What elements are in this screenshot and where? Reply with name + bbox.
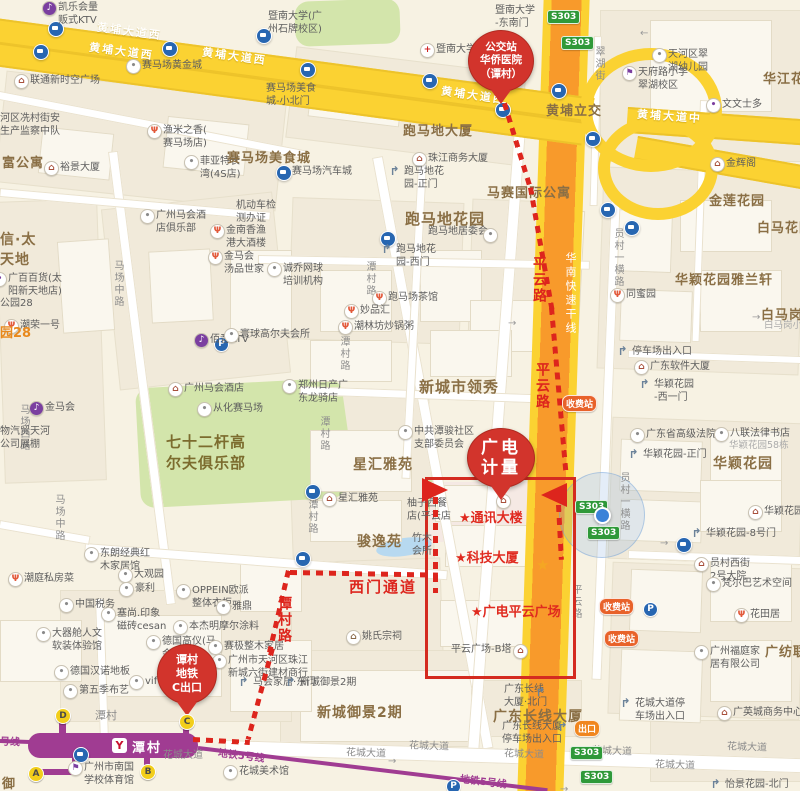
ktv-icon: ♪ — [194, 333, 209, 348]
poi-label: vif — [145, 676, 157, 689]
interchange-ramp — [598, 116, 718, 220]
badge-s303: S303 — [561, 36, 594, 50]
area-label: 黄埔立交 — [546, 100, 602, 119]
poi-label: 跑马地花 园-正门 — [404, 166, 444, 191]
road-label: 马场中路 — [51, 494, 66, 542]
direction-arrow-icon: → — [752, 312, 760, 323]
metro-exit-marker-line: 地铁 — [176, 667, 198, 681]
poi-label: 雅鼎 — [232, 601, 252, 614]
restaurant-icon: Ψ — [210, 224, 225, 239]
metro-station-name: 潭村 — [132, 737, 162, 756]
building-icon: ⌂ — [322, 492, 337, 507]
poi-label: 郑州日产广 东龙骑店 — [298, 380, 348, 405]
shop-icon: • — [706, 98, 721, 113]
restaurant-icon: Ψ — [208, 250, 223, 265]
destination-marker-line: 计量 — [481, 458, 521, 478]
generic-icon: • — [197, 402, 212, 417]
parking-icon: P — [643, 602, 658, 617]
area-label: 华江花园 — [763, 68, 800, 87]
poi-label: 广英城商务中心 — [733, 707, 800, 720]
generic-icon: • — [223, 765, 238, 780]
school-icon: ⚑ — [622, 66, 637, 81]
poi-label: 寰球高尔夫会所 — [240, 329, 310, 342]
gate-icon: ↱ — [709, 778, 722, 791]
current-location-dot[interactable] — [594, 507, 611, 524]
badge-toll-station: 收费站 — [604, 630, 639, 647]
poi-label: 华颖花园 — [764, 506, 800, 519]
area-label: 新城御景2期 — [317, 702, 403, 722]
building-icon: ⌂ — [14, 74, 29, 89]
generic-icon: • — [652, 48, 667, 63]
poi-label: 金马会 — [45, 402, 75, 415]
poi-label: 八联法律书店 — [730, 428, 790, 441]
restaurant-icon: Ψ — [610, 288, 625, 303]
building-icon: ⌂ — [694, 557, 709, 572]
building — [310, 340, 392, 382]
road-label: 花城大道 — [346, 743, 386, 759]
area-label: 跑马地大厦 — [403, 120, 473, 139]
generic-icon: • — [146, 635, 161, 650]
poi-label: 妙品汇 — [360, 305, 390, 318]
metro-exit-C[interactable]: C — [179, 714, 195, 730]
bus-stop-icon — [300, 62, 316, 78]
generic-icon: • — [714, 427, 729, 442]
area-label: 广东长线大厦 — [493, 706, 583, 726]
destination-marker-line: 广电 — [481, 438, 521, 458]
ktv-icon: ♪ — [29, 401, 44, 416]
bus-stop-marker-line: 华侨医院 — [480, 54, 522, 68]
poi-label: 花城美术馆 — [239, 766, 289, 779]
gate-icon: ↱ — [534, 686, 547, 699]
building-icon: ⌂ — [44, 161, 59, 176]
poi-label: 广州福庭家 居有限公司 — [710, 646, 760, 671]
destination-poi-label: ★通讯大楼 — [459, 507, 523, 526]
route-dotted-line — [433, 497, 438, 593]
metro-line-label: 号线 — [0, 733, 20, 749]
poi-label: 德国汉诺地板 — [70, 666, 130, 679]
destination-marker[interactable]: 广电 计量 — [467, 428, 535, 488]
map-label: 公园28 — [0, 298, 33, 311]
poi-label: 金南香渔 港大酒楼 — [226, 225, 266, 250]
road-label: 员村一横路 — [610, 228, 625, 288]
area-label-faint: 白马岗小区 — [764, 320, 800, 332]
building — [148, 248, 214, 323]
gate-icon: ↱ — [616, 345, 629, 358]
area-label-faint: 华颖花园58栋 — [729, 440, 789, 452]
parking-icon: P — [446, 779, 461, 791]
poi-label: 华颖花园-8号门 — [706, 528, 776, 541]
poi-label: 广州马会酒 店俱乐部 — [156, 210, 206, 235]
road-label: 潭村路 — [316, 416, 331, 452]
generic-icon: • — [267, 262, 282, 277]
road-label: 潭村路 — [336, 336, 351, 372]
metro-line-label: 地铁5号线 — [459, 770, 507, 791]
generic-icon: • — [118, 568, 133, 583]
poi-label: 华颖花园 -西一门 — [654, 379, 694, 404]
road-label: 翠湖街 — [591, 46, 606, 82]
bus-stop-icon — [162, 41, 178, 57]
road-label: 花城大道 — [727, 737, 767, 753]
area-label-highlight: 园28 — [0, 322, 31, 341]
map-label: 竹木 会所 — [412, 533, 432, 558]
badge-s303: S303 — [547, 10, 580, 24]
ktv-icon: ♪ — [42, 1, 57, 16]
area-label: 赛马场美食城 — [227, 147, 311, 166]
generic-icon: • — [282, 379, 297, 394]
bus-stop-marker-line: （谭村） — [480, 68, 522, 82]
bus-stop-icon — [600, 202, 616, 218]
generic-icon: • — [119, 582, 134, 597]
building-icon: ⌂ — [412, 152, 427, 167]
generic-icon: • — [224, 328, 239, 343]
poi-label: 天府路小学 翠湖校区 — [638, 67, 688, 92]
badge-exit: 出口 — [574, 720, 600, 737]
poi-label: 梵尔巴艺术空间 — [722, 578, 792, 591]
building-icon: ⌂ — [710, 157, 725, 172]
gate-icon: ↱ — [638, 378, 651, 391]
poi-label: 联通新时空广场 — [30, 75, 100, 88]
map-label: 河区冼村街安 生产监察中队 — [0, 113, 60, 138]
direction-arrow-icon: → — [508, 318, 516, 329]
road-label: 员村一横路 — [616, 472, 631, 532]
badge-s303: S303 — [587, 526, 620, 540]
poi-label: 豪利 — [135, 583, 155, 596]
poi-label: 诚乔网球 培训机构 — [283, 263, 323, 288]
poi-label: 中共潭骏社区 支部委员会 — [414, 426, 474, 451]
building-icon: ⌂ — [168, 382, 183, 397]
poi-label: 姚氏宗祠 — [362, 631, 402, 644]
generic-icon: • — [216, 600, 231, 615]
generic-icon: • — [129, 675, 144, 690]
gate-icon: ↱ — [284, 676, 297, 689]
map-label: 机动车检 测办证 — [236, 200, 276, 225]
area-label: 御 — [2, 773, 16, 791]
generic-icon: • — [694, 645, 709, 660]
poi-label: 广东省高级法院 — [646, 429, 716, 442]
poi-label: 星汇雅苑 — [338, 493, 378, 506]
area-label: 金莲花园 — [709, 190, 765, 209]
metro-exit-marker-line: C出口 — [172, 681, 202, 695]
poi-label: 跑马场茶馆 — [388, 292, 438, 305]
metro-logo-icon: Y — [112, 738, 127, 753]
generic-icon: • — [630, 428, 645, 443]
destination-poi-label: ★科技大厦 — [455, 547, 519, 566]
road-label: 潭村路 — [304, 499, 319, 535]
generic-icon: • — [398, 425, 413, 440]
direction-arrow-icon: → — [560, 784, 568, 791]
poi-label: 同蜜园 — [626, 289, 656, 302]
gate-icon: ↱ — [690, 527, 703, 540]
poi-label: 广东软件大厦 — [650, 361, 710, 374]
road-label: 花城大道 — [655, 755, 695, 771]
route-label: 西门通道 — [349, 576, 417, 597]
bus-stop-icon — [676, 537, 692, 553]
direction-arrow-icon: → — [660, 538, 668, 549]
bus-stop-marker-line: 公交站 — [485, 41, 517, 55]
school-icon: ⚑ — [68, 761, 83, 776]
road — [0, 520, 91, 545]
area-label: 跑马地花园 — [405, 208, 485, 229]
building-icon: ⌂ — [717, 706, 732, 721]
route-label: 谭村路 — [274, 596, 294, 644]
generic-icon: • — [101, 607, 116, 622]
poi-label: 大观园 — [134, 569, 164, 582]
area-label: 广纺联 — [765, 641, 800, 660]
area-label: 星汇雅苑 — [353, 454, 413, 474]
poi-label: 花田居 — [750, 609, 780, 622]
poi-label: 金马会 汤品世家 — [224, 251, 264, 276]
map-label: 赛马场美食 城-小北门 — [266, 83, 316, 108]
route-label: 平云路 — [532, 362, 552, 410]
poi-label: 华颖花园-正门 — [643, 449, 707, 462]
badge-s303: S303 — [580, 770, 613, 784]
restaurant-icon: Ψ — [372, 291, 387, 306]
poi-label: 赛马场黄金城 — [142, 60, 202, 73]
generic-icon: • — [54, 665, 69, 680]
poi-label: 潮庭私房菜 — [24, 573, 74, 586]
poi-label: 新城御景2期 — [300, 677, 356, 690]
poi-label: 跑马地花 园-西门 — [396, 244, 436, 269]
poi-label: 赛马场汽车城 — [292, 166, 352, 179]
bus-stop-icon — [33, 44, 49, 60]
destination-poi-label: ★广电平云广场 — [471, 601, 561, 620]
area-label: 信·太 天地 — [0, 229, 36, 269]
metro-exit-A[interactable]: A — [28, 766, 44, 782]
generic-icon: • — [140, 209, 155, 224]
badge-toll-station: 收费站 — [562, 395, 597, 412]
road-label: 花城大道 — [504, 744, 544, 760]
generic-icon: • — [84, 547, 99, 562]
route-arrow-east-icon — [541, 483, 567, 507]
map-label: 暨南大学 -东南门 — [495, 5, 535, 30]
poi-label: 怡景花园-北门 — [725, 779, 789, 791]
temple-icon: ⌂ — [346, 630, 361, 645]
gate-icon: ↱ — [619, 697, 632, 710]
gate-icon: ↱ — [380, 243, 393, 256]
generic-icon: • — [706, 577, 721, 592]
route-label: 平云路 — [529, 256, 549, 304]
badge-toll-station: 收费站 — [599, 598, 634, 615]
area-label: 七十二杆高 尔夫俱乐部 — [166, 431, 246, 473]
road-label: 花城大道 — [409, 736, 449, 752]
poi-label: 金辉阁 — [726, 158, 756, 171]
bus-stop-icon — [295, 551, 311, 567]
bus-stop-icon — [422, 73, 438, 89]
generic-icon: • — [63, 684, 78, 699]
landmark-star-icon: ★ — [536, 558, 549, 573]
metro-exit-B[interactable]: B — [140, 764, 156, 780]
poi-label: 从化赛马场 — [213, 403, 263, 416]
generic-icon: • — [184, 155, 199, 170]
poi-label: 广州市南国 学校体育馆 — [84, 762, 134, 787]
poi-label: 潮林坊炒锅粥 — [354, 321, 414, 334]
generic-icon: • — [173, 620, 188, 635]
building — [57, 238, 115, 333]
gate-icon: ↱ — [237, 676, 250, 689]
building-icon: ⌂ — [748, 505, 763, 520]
bus-stop-icon — [624, 220, 640, 236]
restaurant-icon: Ψ — [344, 304, 359, 319]
area-label: 潭村 — [95, 707, 117, 723]
direction-arrow-icon: → — [388, 756, 396, 767]
metro-exit-D[interactable]: D — [55, 708, 71, 724]
road-label: 马场中路 — [110, 260, 125, 308]
gate-icon: ↱ — [388, 165, 401, 178]
poi-label: 停车场出入口 — [632, 346, 692, 359]
generic-icon: • — [208, 640, 223, 655]
map-canvas[interactable]: Y 潭村 公交站 华侨医院 （谭村） 广电 计量 谭村 地铁 C出口 ♪凯乐会量… — [0, 0, 800, 791]
bus-stop-icon — [585, 131, 601, 147]
badge-s303: S303 — [570, 746, 603, 760]
poi-label: 渔米之香( 赛马场店) — [163, 125, 207, 150]
area-label: 新城市领秀 — [419, 376, 499, 397]
area-label: 华颖花园雅兰轩 — [675, 269, 773, 288]
poi-label: 花城大道停 车场出入口 — [635, 698, 685, 723]
generic-icon: • — [36, 627, 51, 642]
bus-stop-icon — [276, 165, 292, 181]
bus-stop-icon — [305, 484, 321, 500]
poi-label: 珠江商务大厦 — [428, 153, 488, 166]
area-label: 骏逸苑 — [357, 531, 402, 551]
poi-label: 本杰明摩尔涂料 — [189, 621, 259, 634]
poi-label: 广百百货(太 阳新天地店) — [8, 273, 62, 298]
metro-exit-marker[interactable]: 谭村 地铁 C出口 — [157, 644, 217, 704]
area-label: 华颖花园 — [713, 453, 773, 473]
restaurant-icon: Ψ — [338, 320, 353, 335]
city-block — [650, 720, 800, 782]
restaurant-icon: Ψ — [734, 608, 749, 623]
map-label: 物汽贸天河 公司展棚 — [0, 426, 50, 451]
bus-stop-marker[interactable]: 公交站 华侨医院 （谭村） — [468, 30, 534, 92]
area-label: 白马花园 — [757, 217, 800, 236]
poi-label: 裕景大厦 — [60, 162, 100, 175]
generic-icon: • — [126, 59, 141, 74]
area-label: 富公寓 — [2, 152, 44, 171]
generic-icon: • — [483, 228, 498, 243]
gate-icon: ↱ — [627, 448, 640, 461]
generic-icon: • — [59, 598, 74, 613]
building — [629, 569, 703, 633]
building-icon: ⌂ — [634, 360, 649, 375]
map-label: 平云广场-B塔 — [451, 644, 511, 657]
map-label: 暨南大学(广 州石牌校区) — [268, 11, 322, 36]
poi-label: 大器舱人文 软装体验馆 — [52, 628, 102, 653]
restaurant-icon: Ψ — [8, 572, 23, 587]
poi-label: 塞尚.印象 磁砖cesan — [117, 608, 166, 633]
metro-exit-marker-line: 谭村 — [176, 653, 198, 667]
generic-icon: • — [176, 584, 191, 599]
road-label: 花城大道 — [163, 746, 203, 761]
poi-label: 第五季布艺 — [79, 685, 129, 698]
bus-stop-icon — [551, 83, 567, 99]
poi-label: 广州马会酒店 — [184, 383, 244, 396]
poi-label: 凯乐会量 贩式KTV — [58, 2, 98, 27]
expressway-label: 华南快速干线 — [562, 252, 578, 336]
direction-arrow-icon: ← — [640, 28, 648, 39]
poi-label: 文文士多 — [722, 99, 762, 112]
hospital-icon: + — [420, 43, 435, 58]
building-icon: ⌂ — [513, 644, 528, 659]
restaurant-icon: Ψ — [147, 124, 162, 139]
